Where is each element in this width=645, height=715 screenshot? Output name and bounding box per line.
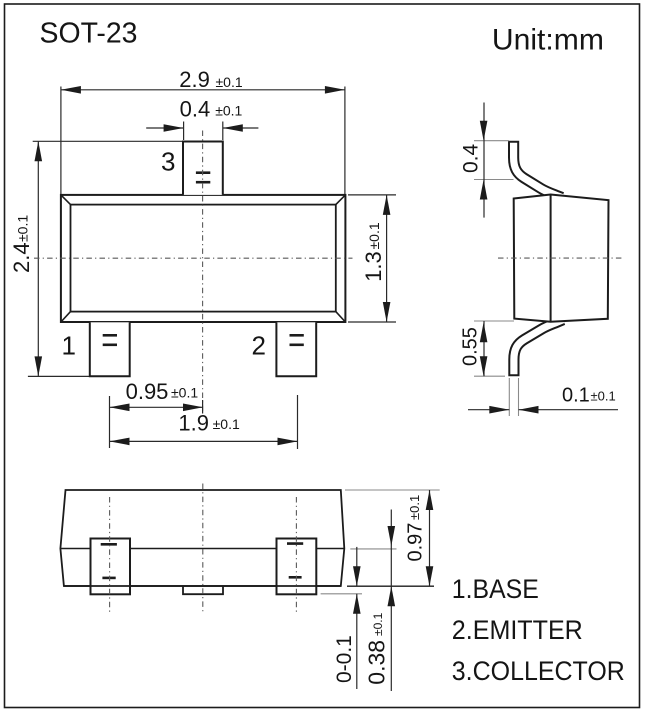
svg-text:±0.1: ±0.1 bbox=[366, 222, 382, 249]
svg-text:±0.1: ±0.1 bbox=[216, 74, 243, 90]
svg-text:0.4: 0.4 bbox=[460, 143, 483, 173]
svg-text:±0.1: ±0.1 bbox=[591, 389, 616, 404]
svg-text:1.BASE: 1.BASE bbox=[452, 574, 539, 604]
svg-text:±0.1: ±0.1 bbox=[215, 103, 242, 119]
svg-text:3.COLLECTOR: 3.COLLECTOR bbox=[452, 656, 625, 686]
svg-text:0-0.1: 0-0.1 bbox=[333, 635, 356, 683]
svg-text:±0.1: ±0.1 bbox=[371, 612, 385, 636]
svg-text:0.97: 0.97 bbox=[405, 523, 427, 562]
svg-text:1.9: 1.9 bbox=[178, 411, 209, 436]
svg-text:2: 2 bbox=[252, 331, 266, 361]
svg-text:1: 1 bbox=[62, 331, 76, 361]
svg-text:0.95: 0.95 bbox=[126, 379, 169, 404]
svg-text:±0.1: ±0.1 bbox=[171, 385, 198, 401]
svg-text:±0.1: ±0.1 bbox=[15, 215, 31, 242]
svg-text:Unit:mm: Unit:mm bbox=[492, 24, 604, 57]
svg-text:2.9: 2.9 bbox=[179, 67, 210, 92]
svg-text:±0.1: ±0.1 bbox=[407, 495, 422, 520]
svg-text:3: 3 bbox=[161, 147, 175, 177]
svg-text:0.55: 0.55 bbox=[460, 327, 482, 366]
svg-text:2.4: 2.4 bbox=[9, 242, 34, 273]
svg-text:0.4: 0.4 bbox=[180, 97, 211, 122]
svg-text:SOT-23: SOT-23 bbox=[40, 17, 138, 49]
svg-text:1.3: 1.3 bbox=[361, 251, 386, 282]
svg-text:0.1: 0.1 bbox=[562, 385, 590, 407]
svg-text:0.38: 0.38 bbox=[364, 640, 390, 685]
svg-text:2.EMITTER: 2.EMITTER bbox=[452, 615, 583, 645]
svg-text:±0.1: ±0.1 bbox=[213, 416, 240, 432]
